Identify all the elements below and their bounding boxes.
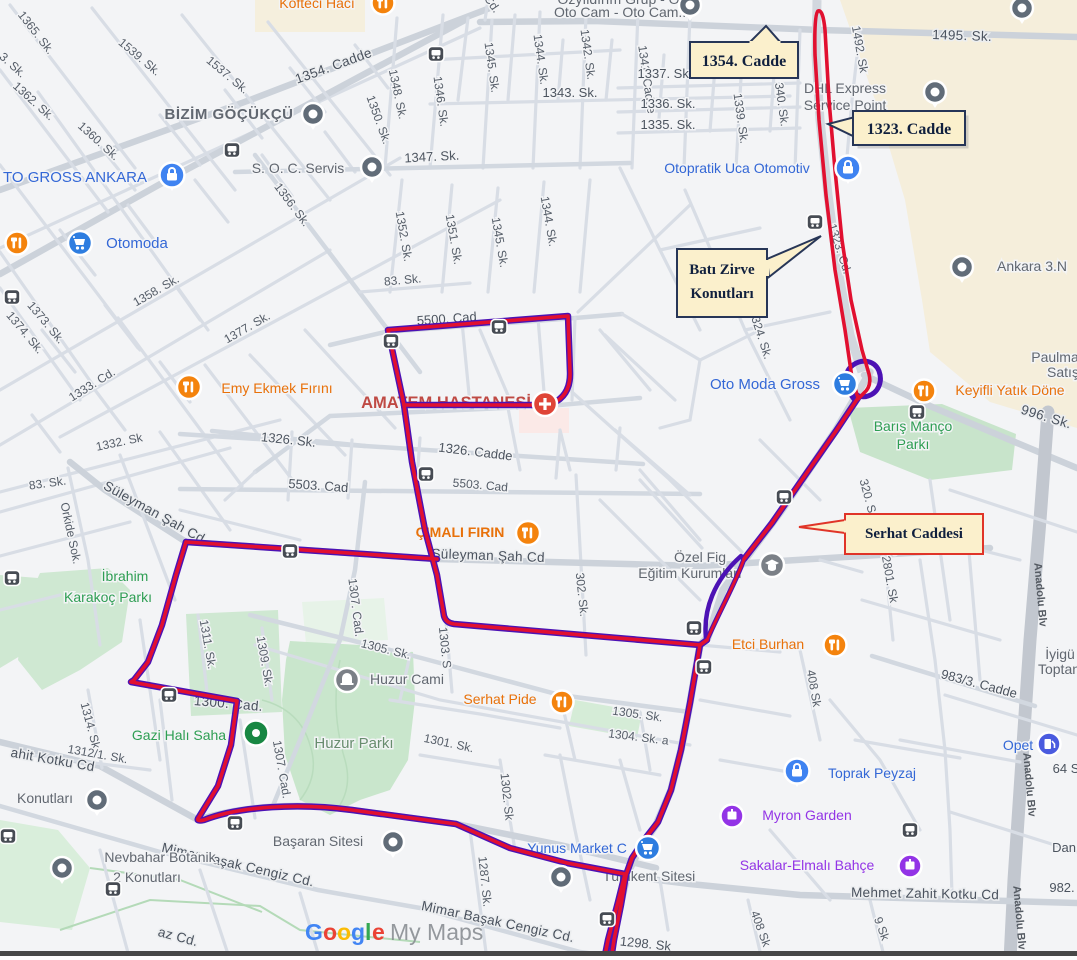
svg-text:Barış Manço: Barış Manço [874,418,953,434]
svg-text:S. O. C. Servis: S. O. C. Servis [252,160,345,176]
svg-text:Nevbahar Botanik: Nevbahar Botanik [104,849,216,865]
svg-text:Başaran Sitesi: Başaran Sitesi [273,833,363,849]
svg-text:1336. Sk.: 1336. Sk. [641,96,696,111]
svg-text:Toptan: Toptan [1038,661,1077,677]
svg-text:Paulma: Paulma [1031,349,1077,365]
svg-text:İbrahim: İbrahim [102,567,149,584]
svg-text:TO GROSS ANKARA: TO GROSS ANKARA [3,169,147,186]
svg-text:Parkı: Parkı [897,436,930,452]
svg-text:Mehmet Zahit Kotku Cd: Mehmet Zahit Kotku Cd [851,885,999,903]
svg-text:Keyifli Yatık Döne: Keyifli Yatık Döne [955,382,1064,398]
svg-text:Otomoda: Otomoda [106,235,168,252]
svg-text:Myron Garden: Myron Garden [762,807,851,823]
svg-text:e: e [372,919,385,945]
svg-text:Köfteci Hacı: Köfteci Hacı [279,0,354,11]
svg-text:İyigü: İyigü [1045,645,1075,662]
svg-text:Özyıldırım Grup - Öz: Özyıldırım Grup - Öz [557,0,686,7]
svg-text:o: o [323,919,337,945]
svg-text:Opet: Opet [1003,737,1033,753]
svg-text:1323. Cadde: 1323. Cadde [867,121,951,138]
svg-text:Oto Moda Gross: Oto Moda Gross [710,376,820,393]
svg-text:l: l [365,919,371,945]
svg-text:2 Konutları: 2 Konutları [113,869,181,885]
svg-text:1343. Sk.: 1343. Sk. [543,85,598,100]
svg-text:Toprak Peyzaj: Toprak Peyzaj [828,765,916,781]
svg-text:Ankara 3.N: Ankara 3.N [997,258,1067,274]
svg-text:g: g [351,919,365,945]
svg-text:Emy Ekmek Fırını: Emy Ekmek Fırını [221,380,332,396]
svg-text:1347. Sk.: 1347. Sk. [404,148,460,166]
svg-text:Etci Burhan: Etci Burhan [732,636,804,652]
svg-text:Konutları: Konutları [17,790,73,806]
svg-text:Karakoç Parkı: Karakoç Parkı [64,589,152,605]
svg-text:Otopratik Uca Otomotiv: Otopratik Uca Otomotiv [664,160,810,176]
svg-text:1335. Sk.: 1335. Sk. [641,117,696,132]
svg-text:o: o [337,919,351,945]
svg-text:G: G [305,919,323,945]
svg-text:982.: 982. [1049,880,1074,895]
svg-text:64 S: 64 S [1053,761,1077,776]
svg-text:Satış: Satış [1047,364,1077,380]
svg-text:Konutları: Konutları [690,286,753,302]
svg-text:My Maps: My Maps [390,919,483,945]
svg-text:Serhat Pide: Serhat Pide [463,691,536,707]
svg-text:Serhat Caddesi: Serhat Caddesi [865,526,963,542]
svg-text:Batı Zirve: Batı Zirve [689,262,755,278]
svg-text:1495. Sk.: 1495. Sk. [932,27,992,44]
svg-text:1337. Sk.: 1337. Sk. [638,66,693,81]
svg-text:Sakalar-Elmalı Bahçe: Sakalar-Elmalı Bahçe [740,857,875,873]
svg-text:Dan: Dan [1052,840,1076,855]
svg-text:Gazi Halı Saha: Gazi Halı Saha [132,727,226,743]
svg-text:Huzur Parkı: Huzur Parkı [314,735,393,752]
svg-text:Özel Fig: Özel Fig [674,548,726,565]
svg-text:BİZİM GÖÇÜKÇÜ: BİZİM GÖÇÜKÇÜ [165,106,294,123]
svg-text:Huzur Cami: Huzur Cami [370,671,444,687]
svg-text:1354. Cadde: 1354. Cadde [702,53,786,70]
